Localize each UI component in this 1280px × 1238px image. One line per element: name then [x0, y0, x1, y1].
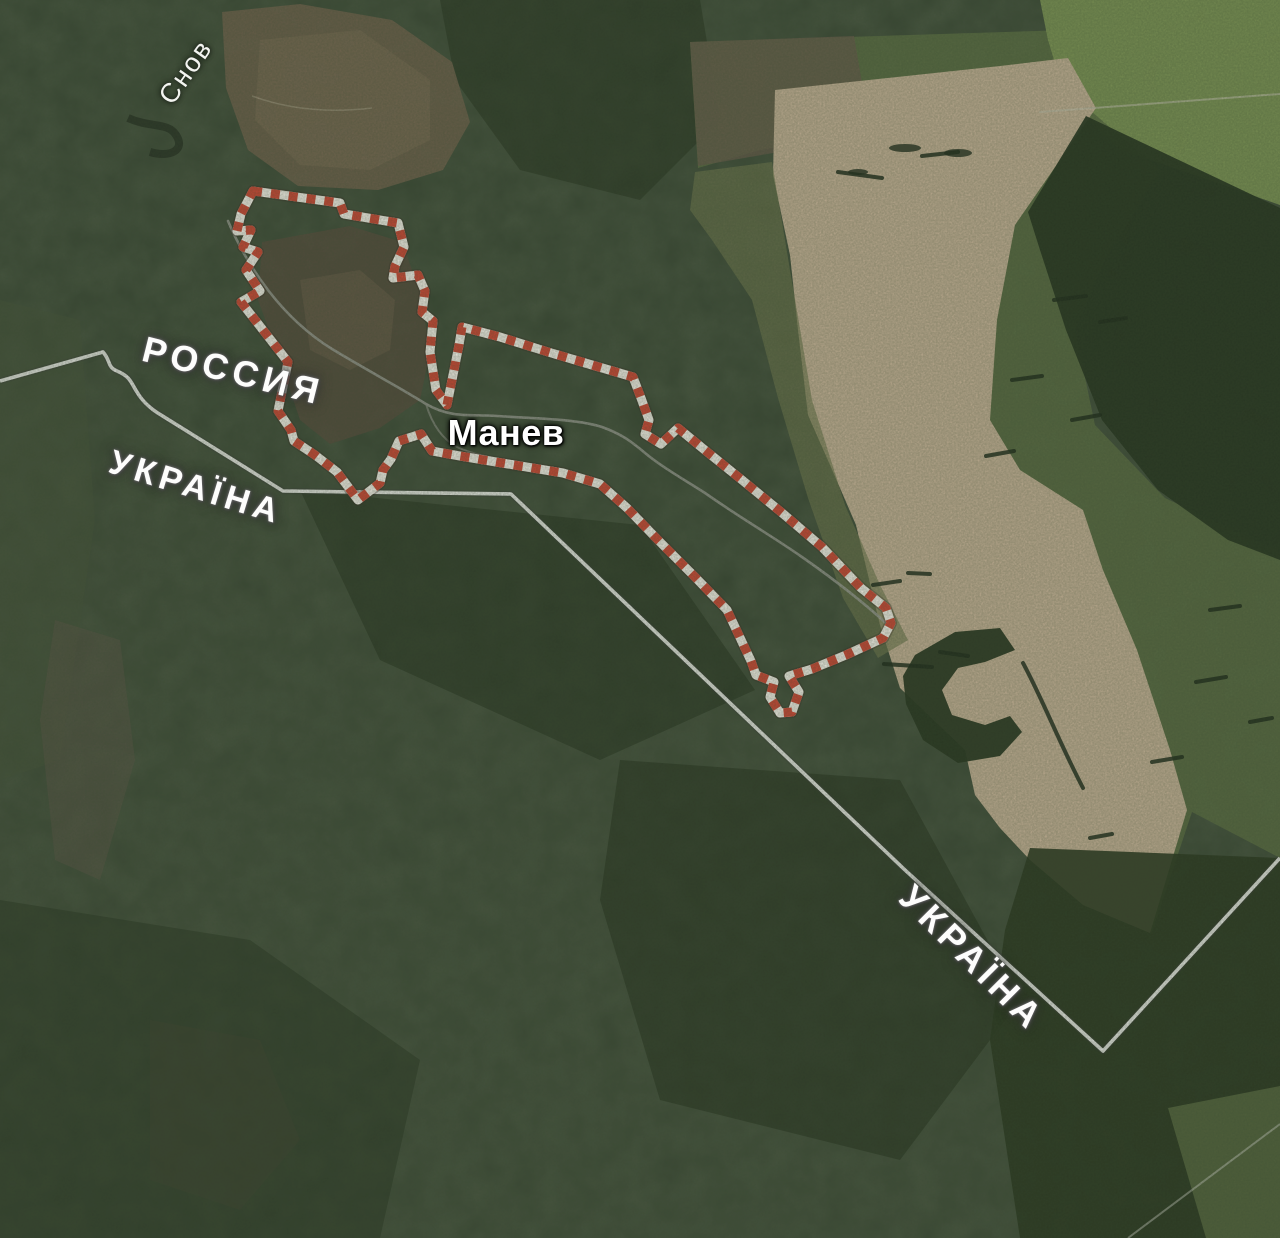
satellite-map-canvas[interactable]: Снов РОССИЯ УКРАЇНА Манев УКРАЇНА: [0, 0, 1280, 1238]
settlement-label-manev[interactable]: Манев: [448, 412, 565, 454]
satellite-imagery-layer: [0, 0, 1280, 1238]
